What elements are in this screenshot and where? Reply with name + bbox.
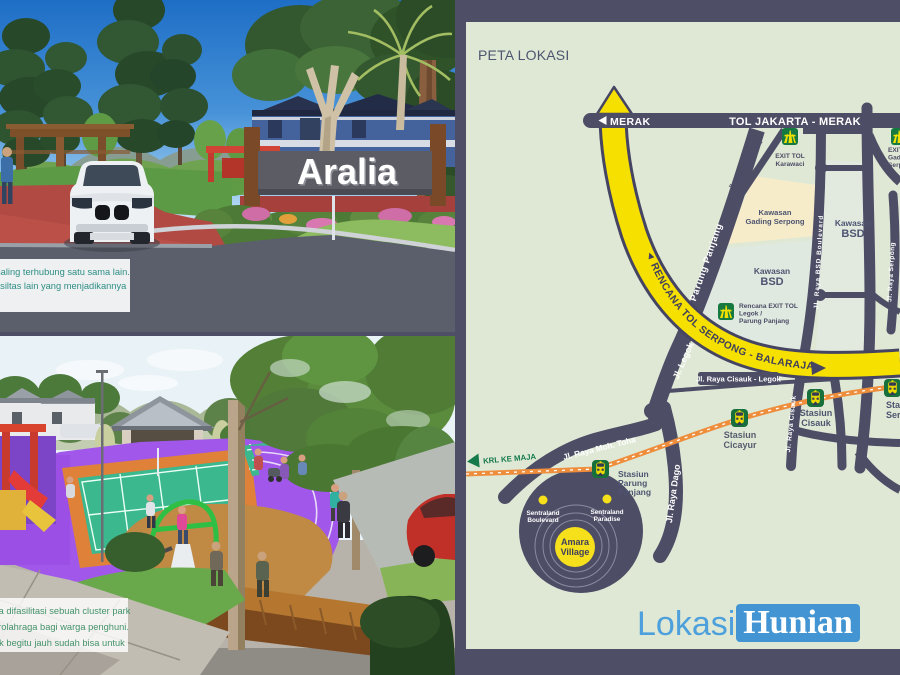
svg-text:Rencana EXIT TOL: Rencana EXIT TOL: [739, 303, 798, 310]
svg-text:Amara: Amara: [561, 537, 590, 547]
svg-text:Cicayur: Cicayur: [723, 440, 757, 450]
svg-text:Gading Serpong: Gading Serpong: [745, 217, 804, 226]
svg-text:saling terhubung satu sama lai: saling terhubung satu sama lain.: [0, 267, 130, 277]
svg-text:Serpong: Serpong: [888, 162, 900, 169]
svg-text:Sentraland: Sentraland: [590, 509, 623, 516]
svg-text:Karawaci: Karawaci: [776, 161, 805, 168]
svg-text:Boulevard: Boulevard: [527, 517, 558, 524]
svg-text:Lokasi: Lokasi: [637, 605, 735, 643]
svg-text:Stasiun: Stasiun: [800, 408, 833, 418]
svg-text:TOL JAKARTA - MERAK: TOL JAKARTA - MERAK: [729, 116, 861, 128]
svg-text:Aralia: Aralia: [297, 151, 398, 192]
svg-text:Village: Village: [561, 547, 590, 557]
svg-text:Legok /: Legok /: [739, 311, 762, 318]
svg-text:Stasiun: Stasiun: [886, 400, 900, 410]
svg-text:erolahraga bagi warga penghuni: erolahraga bagi warga penghuni.: [0, 622, 129, 632]
svg-text:Hunian: Hunian: [743, 604, 853, 641]
svg-text:Stasiun: Stasiun: [724, 430, 757, 440]
svg-text:EXIT TOL: EXIT TOL: [775, 153, 805, 160]
svg-text:BSD: BSD: [841, 228, 864, 240]
svg-text:asiltas lain yang menjadikanny: asiltas lain yang menjadikannya: [0, 281, 127, 291]
svg-text:Kawasan: Kawasan: [754, 266, 790, 276]
svg-text:MERAK: MERAK: [610, 116, 651, 128]
svg-text:ak begitu jauh sudah bisa untu: ak begitu jauh sudah bisa untuk: [0, 638, 125, 648]
svg-text:Serpong: Serpong: [886, 410, 900, 420]
svg-text:Sentraland: Sentraland: [526, 510, 559, 517]
svg-text:Parung Panjang: Parung Panjang: [739, 318, 789, 325]
svg-text:Paradise: Paradise: [594, 516, 621, 523]
svg-text:Kawasan: Kawasan: [759, 208, 792, 217]
svg-text:BSD: BSD: [760, 276, 783, 288]
svg-text:ya difasilitasi sebuah cluste: ya difasilitasi sebuah cluster park: [0, 606, 131, 616]
svg-text:Kawasan: Kawasan: [835, 218, 871, 228]
svg-text:Jl. Raya Cisauk - Legok: Jl. Raya Cisauk - Legok: [696, 375, 782, 384]
svg-text:Panjang: Panjang: [618, 487, 651, 497]
svg-text:Gading: Gading: [888, 155, 900, 162]
svg-text:EXIT TOL: EXIT TOL: [888, 147, 900, 154]
svg-text:Cisauk: Cisauk: [801, 418, 832, 428]
svg-text:PETA LOKASI: PETA LOKASI: [478, 47, 569, 63]
